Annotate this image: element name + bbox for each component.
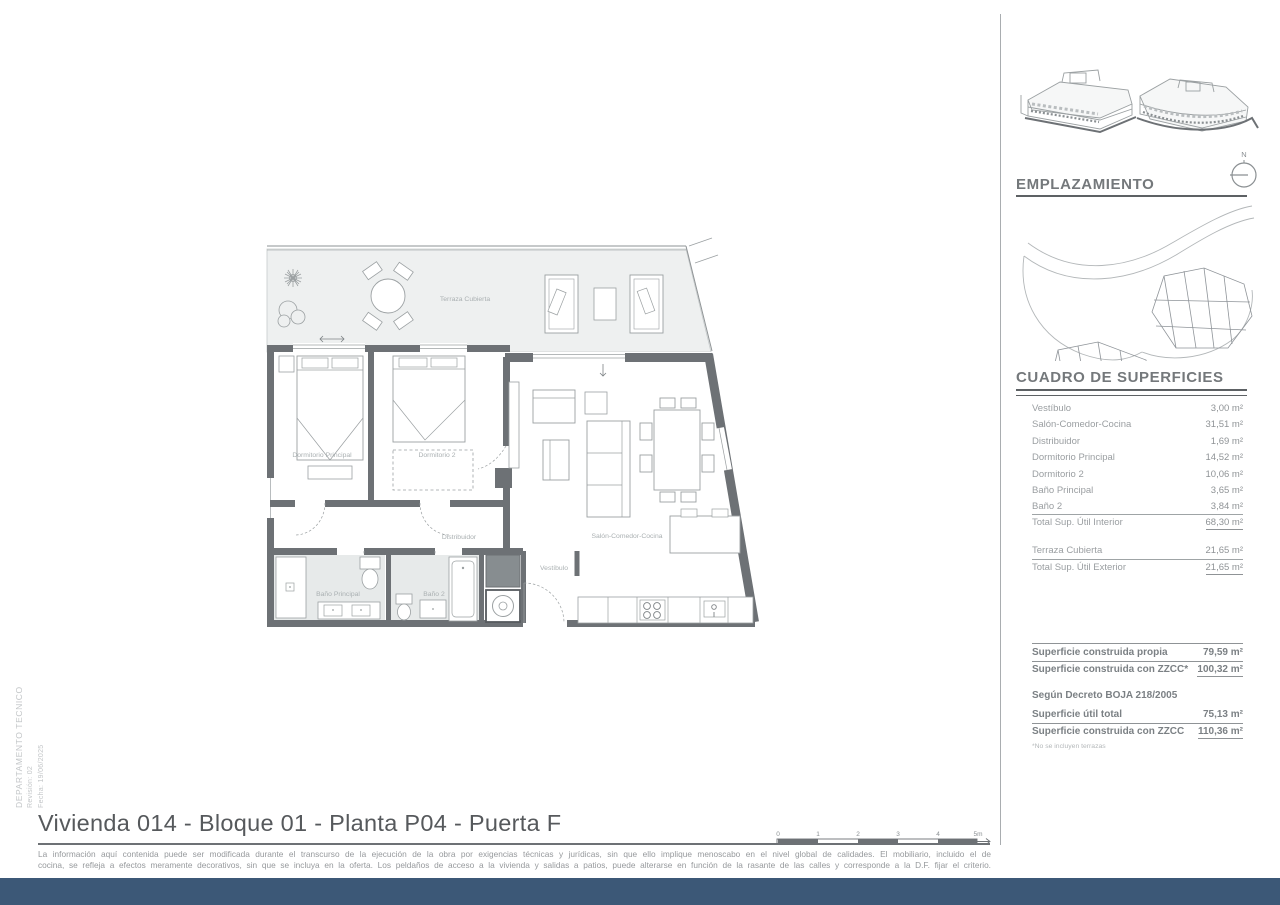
terrace-row: Terraza Cubierta21,65 m² xyxy=(1032,545,1243,556)
bedroom2-label: Dormitorio 2 xyxy=(418,452,455,459)
surfaces-title: CUADRO DE SUPERFICIES xyxy=(1016,369,1224,386)
vertical-divider xyxy=(1000,14,1001,845)
north-label: N xyxy=(1241,150,1246,159)
total-exterior-topline xyxy=(1032,559,1243,560)
surface-row: Baño 23,84 m² xyxy=(1032,501,1243,512)
bath2-label: Baño 2 xyxy=(423,591,445,598)
decree-row: Superficie construida con ZZCC110,36 m² xyxy=(1032,726,1243,739)
revision-label: Revisión: 02 xyxy=(25,612,36,808)
built-row: Superficie construida con ZZCC*100,32 m² xyxy=(1032,664,1243,677)
decree-midline xyxy=(1032,723,1243,724)
surfaces-footnote: *No se incluyen terrazas xyxy=(1032,743,1106,750)
scale-tick: 5m xyxy=(973,831,982,838)
bathroom-2 xyxy=(391,555,479,621)
hall-label: Distribuidor xyxy=(442,534,477,541)
footer-bar xyxy=(0,878,1280,905)
built-topline xyxy=(1032,643,1243,644)
floor-plan: Terraza Cubierta Dormitorio Principal Do… xyxy=(250,232,770,644)
surfaces-rule xyxy=(1016,389,1247,396)
total-interior-row: Total Sup. Útil Interior68,30 m² xyxy=(1032,517,1243,530)
total-exterior-row: Total Sup. Útil Exterior21,65 m² xyxy=(1032,562,1243,575)
master-bathroom xyxy=(274,555,385,620)
disclaimer-line-1: La información aquí contenida puede ser … xyxy=(38,849,991,860)
scale-tick: 2 xyxy=(856,831,860,838)
north-compass-icon: N xyxy=(1225,148,1265,193)
scale-tick: 3 xyxy=(896,831,900,838)
vestibule-label: Vestíbulo xyxy=(540,565,568,572)
emplazamiento-title: EMPLAZAMIENTO xyxy=(1016,176,1154,193)
surface-row: Dormitorio 210,06 m² xyxy=(1032,469,1243,480)
sheet-title: Vivienda 014 - Bloque 01 - Planta P04 - … xyxy=(38,810,561,837)
disclaimer-line-2: cocina, se refleja a efectos meramente d… xyxy=(38,860,991,871)
terrace-label: Terraza Cubierta xyxy=(440,296,490,303)
decree-heading: Según Decreto BOJA 218/2005 xyxy=(1032,690,1243,701)
scale-tick: 0 xyxy=(776,831,780,838)
site-plan xyxy=(1016,203,1260,361)
living-label: Salón-Comedor-Cocina xyxy=(591,533,662,540)
master-bath-label: Baño Principal xyxy=(316,591,360,598)
department-label: DEPARTAMENTO TECNICO xyxy=(14,612,25,808)
surface-row: Salón-Comedor-Cocina31,51 m² xyxy=(1032,419,1243,430)
scale-tick: 1 xyxy=(816,831,820,838)
building-sketch xyxy=(1016,20,1260,145)
date-label: Fecha: 19/06/2025 xyxy=(36,612,47,808)
emplazamiento-rule xyxy=(1016,195,1247,197)
master-bedroom-label: Dormitorio Principal xyxy=(292,452,352,459)
built-midline xyxy=(1032,661,1243,662)
surface-row: Dormitorio Principal14,52 m² xyxy=(1032,452,1243,463)
surface-row: Distribuidor1,69 m² xyxy=(1032,436,1243,447)
structural-column xyxy=(495,468,512,488)
scale-tick: 4 xyxy=(936,831,940,838)
tv-unit xyxy=(509,382,519,468)
scale-bar: 0 1 2 3 4 5m xyxy=(766,828,996,848)
site-roads xyxy=(1023,206,1254,360)
surface-row: Baño Principal3,65 m² xyxy=(1032,485,1243,496)
surface-row: Vestíbulo3,00 m² xyxy=(1032,403,1243,414)
kitchen-island xyxy=(670,516,740,553)
title-rule xyxy=(38,843,990,845)
total-interior-topline xyxy=(1032,514,1243,515)
built-row: Superficie construida propia79,59 m² xyxy=(1032,647,1243,658)
sheet-meta-vertical: DEPARTAMENTO TECNICO Revisión: 02 Fecha:… xyxy=(14,612,47,808)
decree-row: Superficie útil total75,13 m² xyxy=(1032,709,1243,720)
plan-sheet: { "meta": { "department": "DEPARTAMENTO … xyxy=(0,0,1280,905)
